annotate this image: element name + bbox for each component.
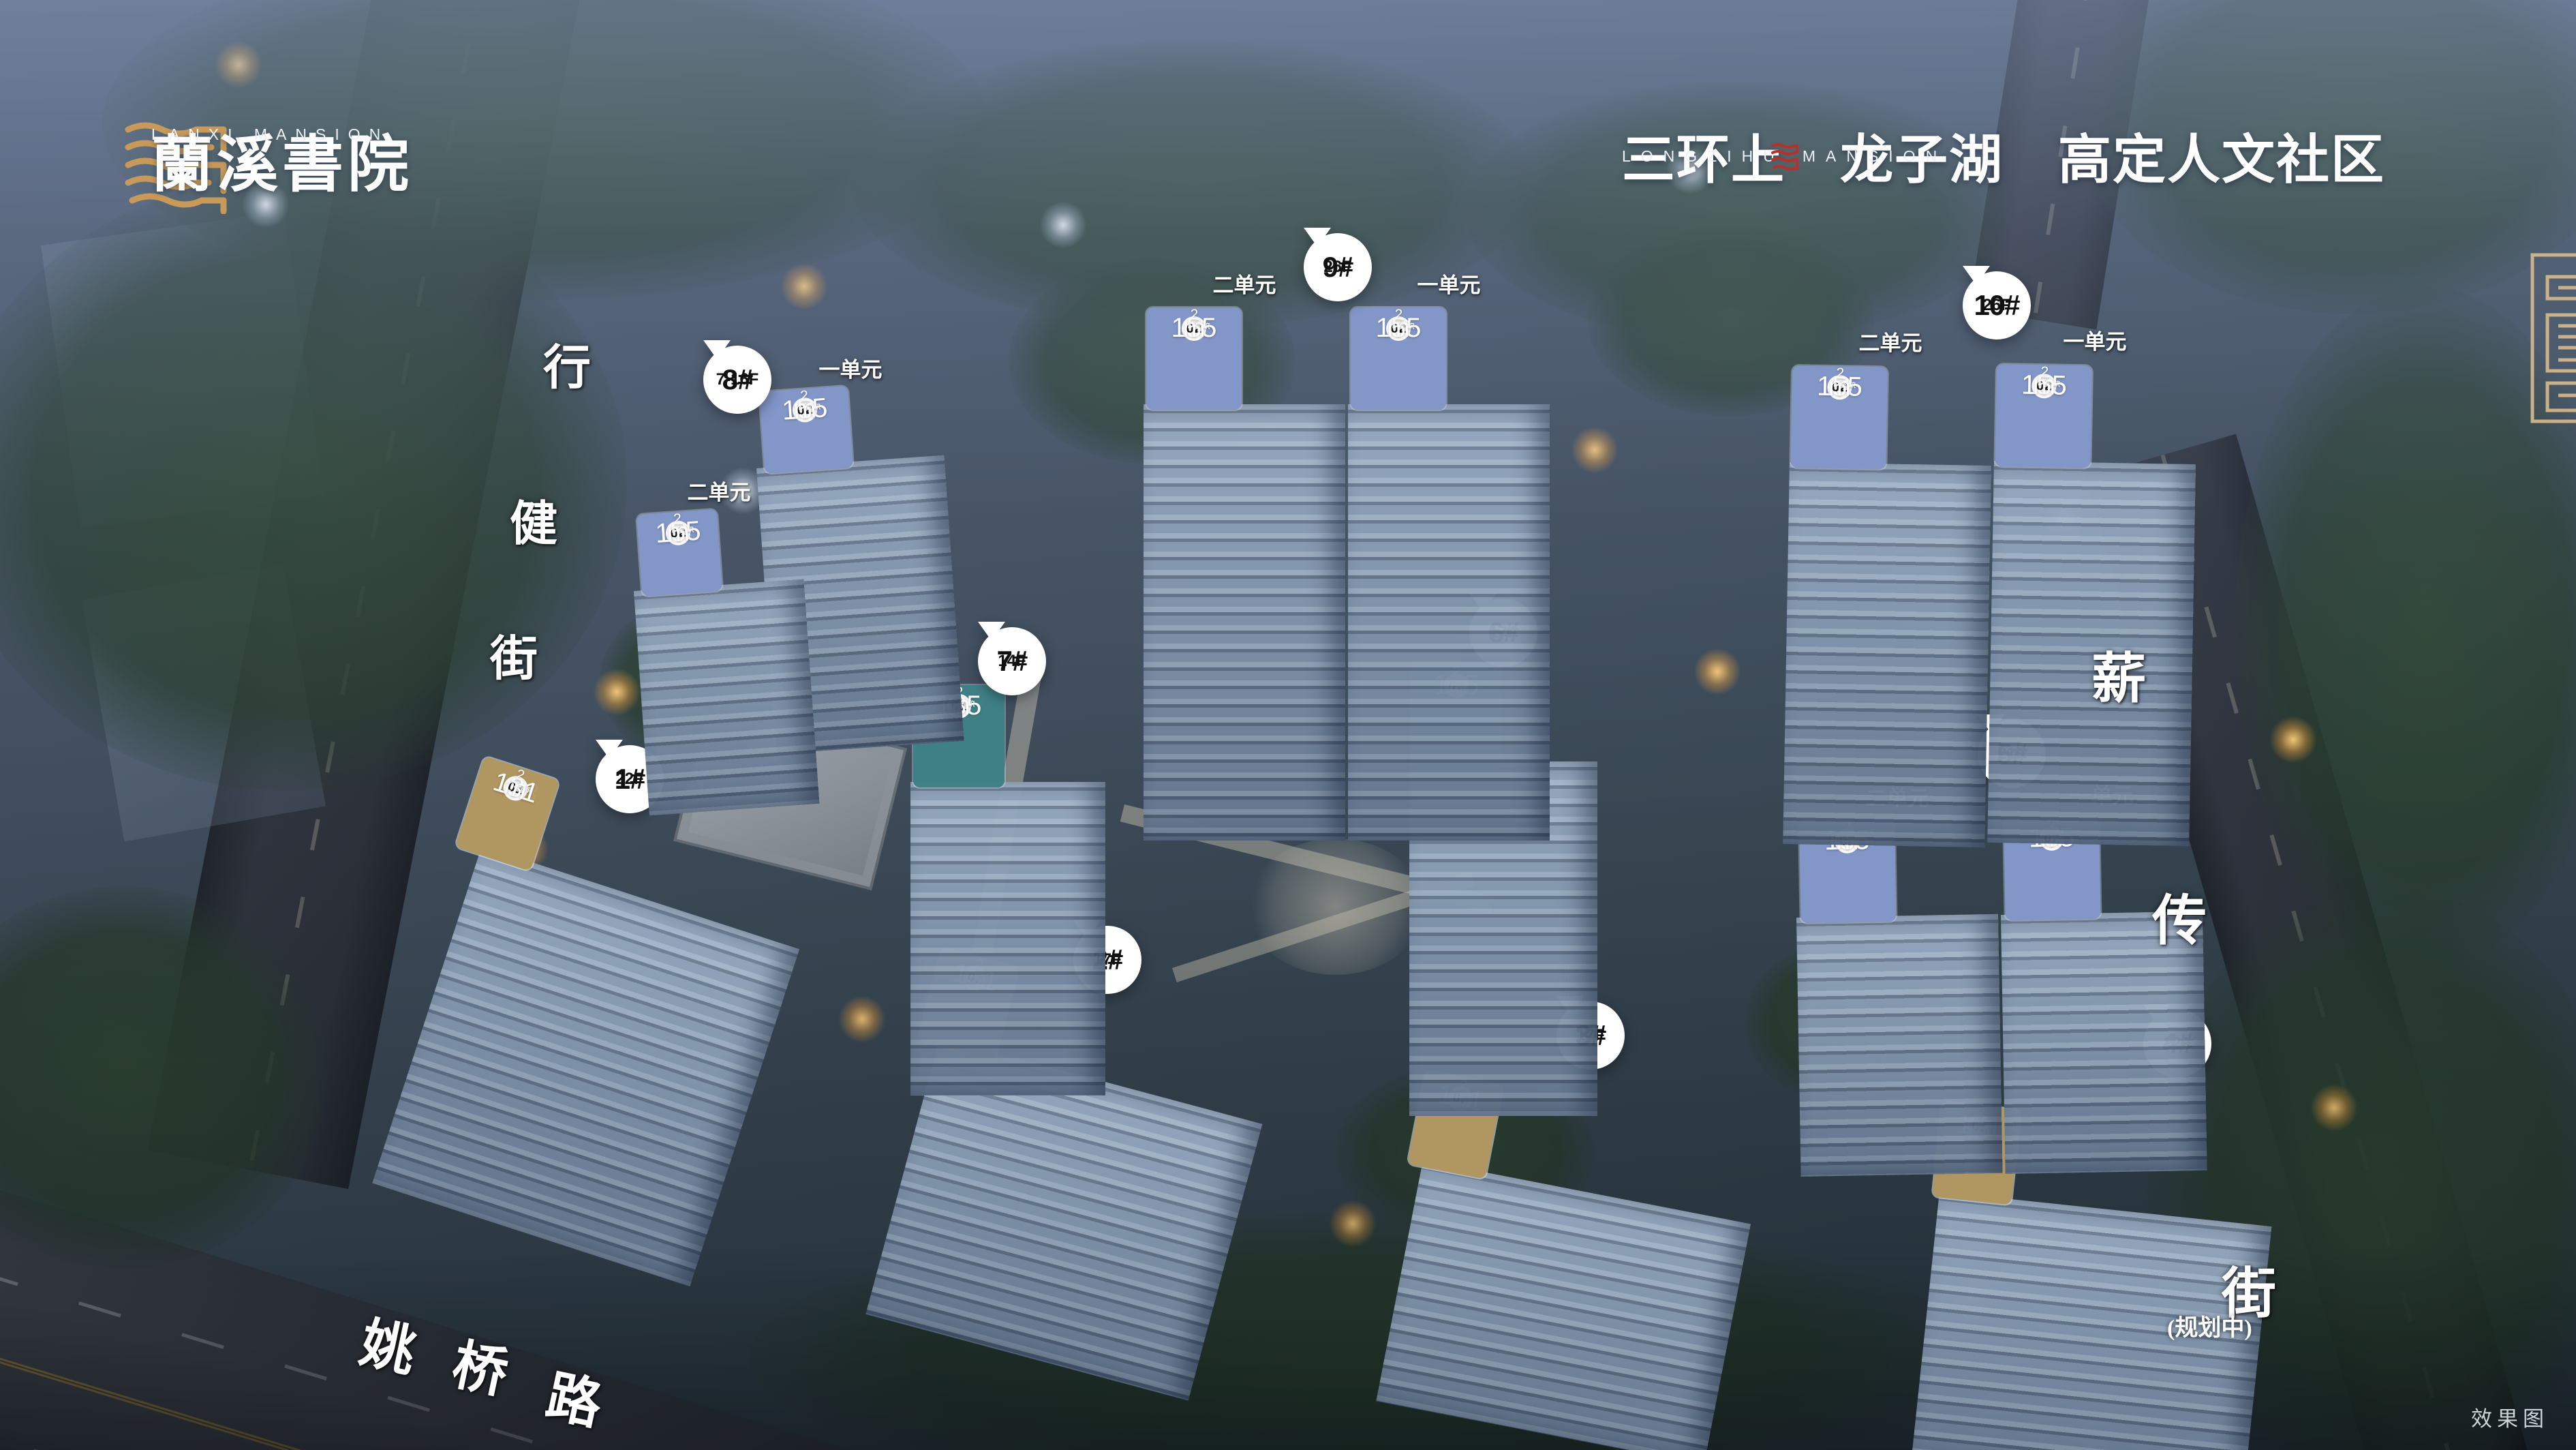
sparkle-light [1039, 201, 1087, 249]
street-lamp-glow [593, 668, 641, 716]
unit-section-label: 一单元 [2064, 324, 2127, 355]
pin-floor-count: 22F [615, 771, 643, 787]
unit-roof-9-02[interactable]: 02建筑面积约155m2 [1351, 307, 1446, 410]
roof-strip: 01建筑面积约155m202建筑面积约155m2 [637, 503, 807, 596]
unit-section-label: 一单元 [1417, 268, 1481, 299]
headline-seal-icon [1771, 142, 1798, 172]
courtyard-plaza [1247, 839, 1424, 975]
area-superscript: 2 [1395, 307, 1403, 323]
pin-tail [1963, 266, 1990, 299]
pin-floor-count: 7-16F [716, 372, 759, 388]
headline-en-left: LONGZIHU [1622, 147, 1785, 166]
street-lamp-glow [2269, 716, 2317, 764]
corner-ornament-icon [2523, 250, 2576, 427]
street-label-xinchuan: 薪 [2091, 635, 2146, 714]
render-watermark: 效果图 [2412, 1402, 2549, 1432]
building-facade [1144, 404, 1345, 841]
street-label-xingjian: 行 [543, 329, 591, 398]
street-lamp-glow [1329, 1200, 1377, 1248]
area-superscript: 2 [2040, 364, 2049, 380]
site-plan-stage: 04建筑面积约131m203建筑面积约108m202建筑面积约108m201建筑… [0, 0, 2576, 1450]
pin-tail [703, 340, 731, 373]
unit-roof-1-01[interactable]: 01建筑面积约131m2 [455, 756, 560, 871]
area-superscript: 2 [673, 511, 681, 528]
unit-roof-9-02[interactable]: 02建筑面积约155m2 [1146, 307, 1242, 410]
building-facade [910, 782, 1105, 1096]
street-label-xingjian: 健 [510, 485, 557, 554]
unit-section-label: 二单元 [688, 475, 751, 506]
headline-en-right: MANSION [1803, 147, 1947, 166]
building-facade [1783, 462, 1991, 847]
building-facade [1796, 914, 2003, 1177]
street-label-xinchuan-note: (规划中) [2167, 1309, 2252, 1342]
area-superscript: 2 [1836, 365, 1844, 382]
roof-strip: 01建筑面积约155m202建筑面积约155m2 [1790, 365, 1989, 471]
unit-roof-8-02[interactable]: 02建筑面积约155m2 [759, 386, 853, 474]
brand-name-en: LANXI MANSION [151, 125, 389, 144]
unit-section-label: 二单元 [1213, 268, 1276, 299]
building-facade [1348, 404, 1550, 841]
pin-floor-count: 26F [1982, 297, 2010, 314]
street-label-xinchuan: 传 [2152, 877, 2207, 956]
pin-tail [978, 622, 1005, 654]
street-lamp-glow [1693, 648, 1741, 695]
roof-strip: 01建筑面积约155m202建筑面积约155m2 [1995, 364, 2193, 470]
unit-section-label: 二单元 [1859, 326, 1922, 357]
area-superscript: 2 [799, 388, 808, 405]
pin-floor-count: 26F [1323, 259, 1351, 275]
street-lamp-glow [1571, 426, 1619, 474]
pin-tail [596, 740, 623, 772]
roof-strip: 01建筑面积约155m202建筑面积约155m2 [759, 379, 947, 473]
unit-section-label: 一单元 [819, 352, 883, 383]
unit-roof-10-02[interactable]: 02建筑面积约155m2 [1790, 365, 1888, 469]
street-lamp-glow [780, 262, 828, 310]
headline-subtitle: LONGZIHU MANSION [1622, 147, 1947, 166]
street-label-xingjian: 街 [490, 620, 538, 689]
street-lamp-glow [838, 995, 886, 1043]
area-superscript: 2 [1191, 307, 1199, 323]
street-lamp-glow [215, 41, 262, 89]
pin-floor-count: 14F [998, 653, 1026, 669]
roof-strip: 01建筑面积约155m202建筑面积约155m2 [1351, 307, 1547, 410]
building-facade [634, 579, 819, 816]
unit-roof-8-02[interactable]: 02建筑面积约155m2 [637, 509, 722, 596]
roof-strip: 01建筑面积约155m202建筑面积约155m2 [1146, 307, 1343, 410]
street-lamp-glow [2310, 1084, 2358, 1132]
pin-tail [1304, 228, 1331, 260]
unit-roof-10-02[interactable]: 02建筑面积约155m2 [1995, 364, 2092, 468]
